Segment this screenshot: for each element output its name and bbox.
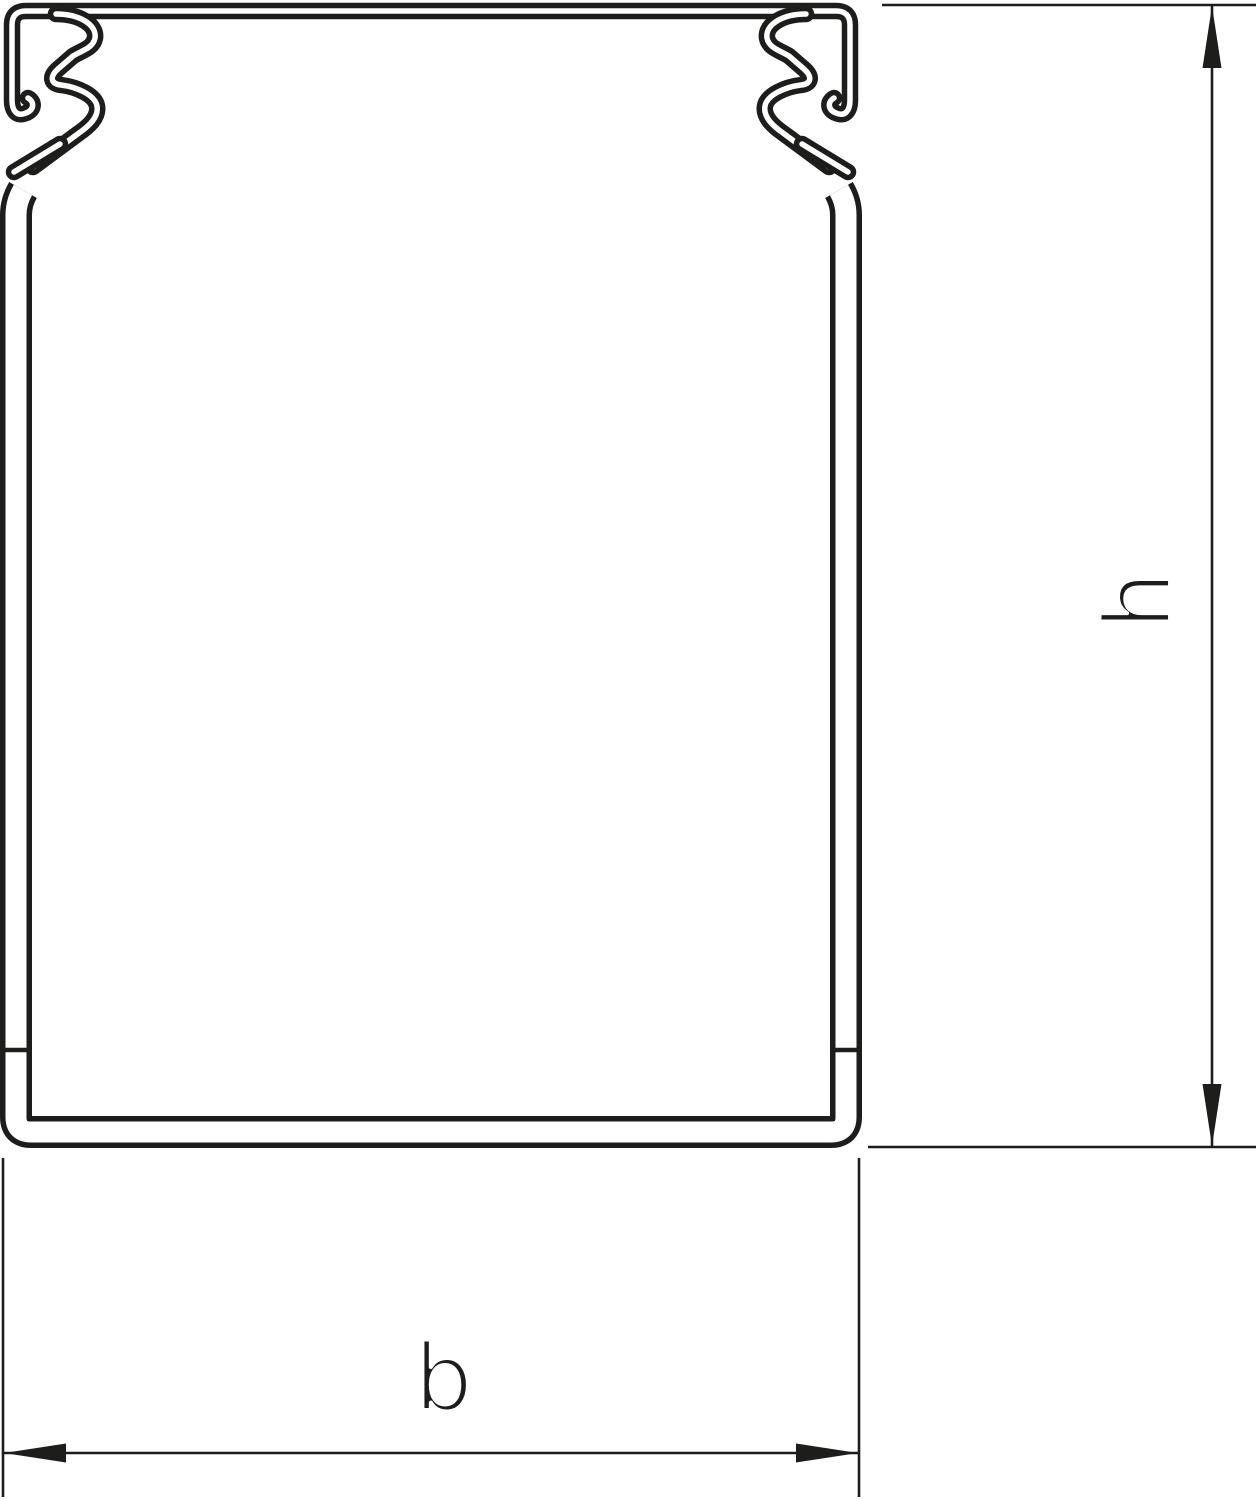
h-arrowhead-top bbox=[1203, 6, 1222, 68]
duct-cross-section-drawing: h b bbox=[0, 0, 1258, 1500]
cover-band-black bbox=[12, 11, 850, 114]
b-arrowhead-right bbox=[796, 1444, 858, 1463]
width-dimension: b bbox=[3, 1158, 859, 1497]
height-dimension: h bbox=[868, 5, 1256, 1147]
duct-body-outline bbox=[16, 190, 846, 1132]
height-dimension-label: h bbox=[1084, 571, 1192, 630]
h-arrowhead-bottom bbox=[1203, 1084, 1222, 1146]
cover-band-white bbox=[12, 11, 850, 114]
width-dimension-label: b bbox=[414, 1324, 473, 1432]
duct-body-band-white bbox=[16, 190, 846, 1132]
duct-body-band-black bbox=[16, 190, 846, 1132]
b-arrowhead-left bbox=[4, 1444, 66, 1463]
duct-cover-outline bbox=[12, 11, 850, 114]
technical-drawing-canvas: h b bbox=[0, 0, 1258, 1500]
